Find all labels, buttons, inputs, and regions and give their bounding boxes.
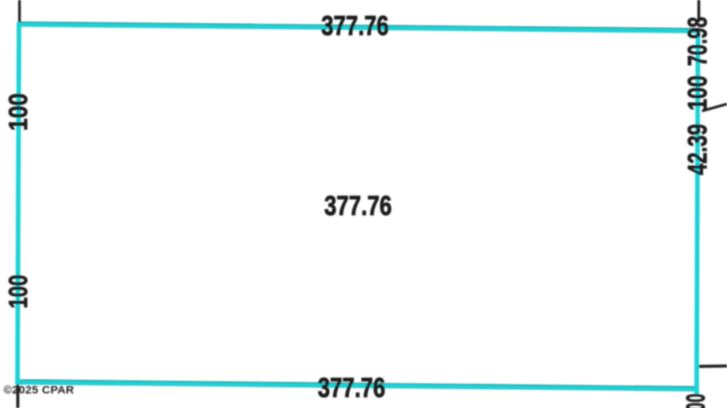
svg-text:©2025 CPAR: ©2025 CPAR	[4, 385, 75, 397]
svg-text:100: 100	[3, 275, 32, 309]
svg-text:377.76: 377.76	[321, 11, 389, 42]
svg-text:377.76: 377.76	[318, 373, 386, 404]
svg-text:70.98: 70.98	[683, 17, 713, 66]
svg-text:377.76: 377.76	[324, 191, 392, 222]
svg-text:100: 100	[681, 394, 711, 408]
svg-text:100: 100	[683, 75, 713, 110]
svg-text:100: 100	[5, 93, 34, 131]
svg-text:42.39: 42.39	[683, 124, 713, 175]
